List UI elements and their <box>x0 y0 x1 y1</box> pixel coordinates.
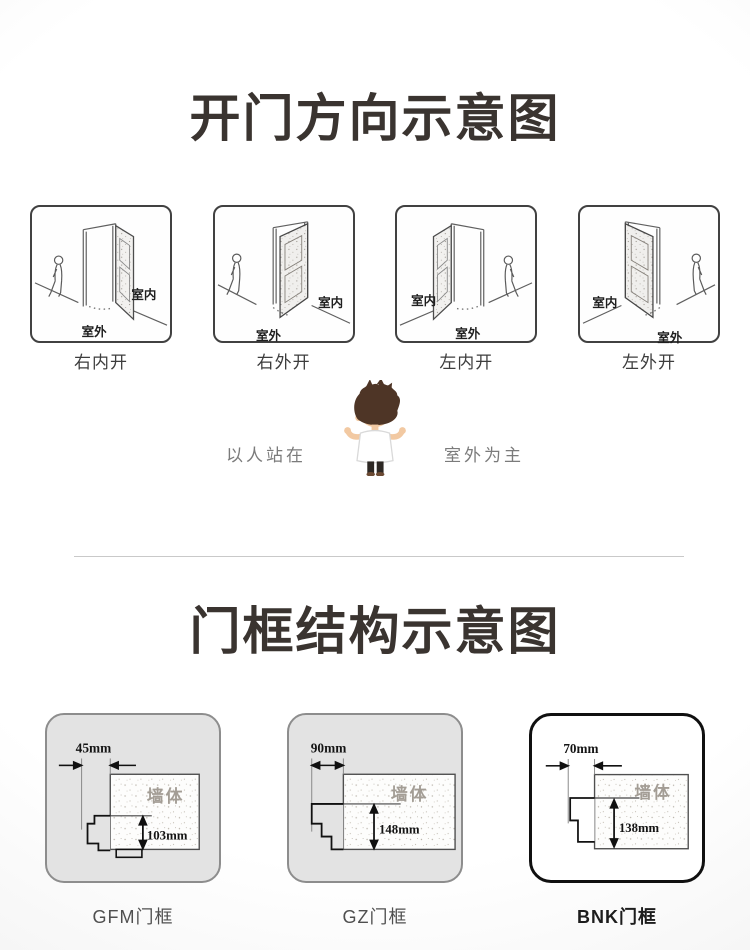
frame-section-illustration: 墙体 45mm 103mm <box>47 716 219 880</box>
frame-section-illustration: 墙体 70mm 138mm <box>532 718 702 878</box>
door-diagram-box: 室内 室外 <box>395 205 537 343</box>
door-variant-left-outward: 室内 室外 左外开 <box>578 205 720 374</box>
frame-diagram-box-highlighted: 墙体 70mm 138mm <box>529 713 705 883</box>
outdoor-label: 室外 <box>256 325 281 344</box>
indoor-label: 室内 <box>318 292 343 311</box>
door-direction-title: 开门方向示意图 <box>0 0 750 149</box>
width-dimension-label: 70mm <box>563 741 598 756</box>
door-open-outward-illustration <box>581 208 717 340</box>
frame-caption: GZ门框 <box>343 905 408 929</box>
frame-diagram-box: 墙体 45mm 103mm <box>45 713 221 883</box>
indoor-label: 室内 <box>592 292 617 311</box>
outdoor-label: 室外 <box>455 323 480 342</box>
outdoor-label: 室外 <box>657 327 682 346</box>
door-diagram-box: 室内 室外 <box>213 205 355 343</box>
frame-structure-row: 墙体 45mm 103mm GFM门 <box>0 713 750 929</box>
door-infographic-page: 开门方向示意图 <box>0 0 750 950</box>
frame-profile <box>88 816 111 851</box>
frame-variant-bnk: 墙体 70mm 138mm BNK门框 <box>529 713 705 929</box>
frame-profile <box>570 798 594 842</box>
indoor-label: 室内 <box>131 284 156 303</box>
frame-structure-title: 门框结构示意图 <box>0 603 750 662</box>
door-direction-row: 室内 室外 右内开 <box>0 205 750 374</box>
frame-caption: GFM门框 <box>93 905 174 929</box>
wall-label: 墙体 <box>635 782 672 802</box>
wall-label: 墙体 <box>391 784 429 804</box>
width-dimension-label: 90mm <box>311 741 347 756</box>
wall-label: 墙体 <box>147 786 185 806</box>
door-open-outward-illustration <box>216 208 352 340</box>
outdoor-label: 室外 <box>82 321 107 340</box>
note-right: 室外为主 <box>444 441 524 476</box>
door-diagram-box: 室内 室外 <box>30 205 172 343</box>
frame-variant-gfm: 墙体 45mm 103mm GFM门 <box>45 713 221 929</box>
door-caption: 右外开 <box>257 352 311 374</box>
frame-section-illustration: 墙体 90mm 148mm <box>289 716 461 880</box>
width-dimension-label: 45mm <box>76 741 112 756</box>
indoor-label: 室内 <box>411 290 436 309</box>
depth-dimension-label: 138mm <box>619 821 660 835</box>
door-variant-left-inward: 室内 室外 左内开 <box>395 205 537 374</box>
door-caption: 右内开 <box>74 352 128 374</box>
note-left: 以人站在 <box>226 441 306 476</box>
door-variant-right-outward: 室内 室外 右外开 <box>213 205 355 374</box>
person-figure <box>227 254 241 295</box>
door-variant-right-inward: 室内 室外 右内开 <box>30 205 172 374</box>
depth-dimension-label: 103mm <box>147 829 188 843</box>
door-diagram-box: 室内 室外 <box>578 205 720 343</box>
mascot-note-row: 以人站在 室外为主 <box>0 380 750 476</box>
door-caption: 左外开 <box>622 352 676 374</box>
mascot-boy-back-icon <box>332 380 418 476</box>
depth-dimension-label: 148mm <box>379 823 420 837</box>
frame-profile <box>312 804 344 849</box>
frame-variant-gz: 墙体 90mm 148mm GZ门框 <box>287 713 463 929</box>
door-open-inward-illustration <box>398 208 534 340</box>
door-caption: 左内开 <box>439 352 493 374</box>
frame-diagram-box: 墙体 90mm 148mm <box>287 713 463 883</box>
frame-caption: BNK门框 <box>577 905 657 929</box>
section-divider <box>74 556 684 557</box>
